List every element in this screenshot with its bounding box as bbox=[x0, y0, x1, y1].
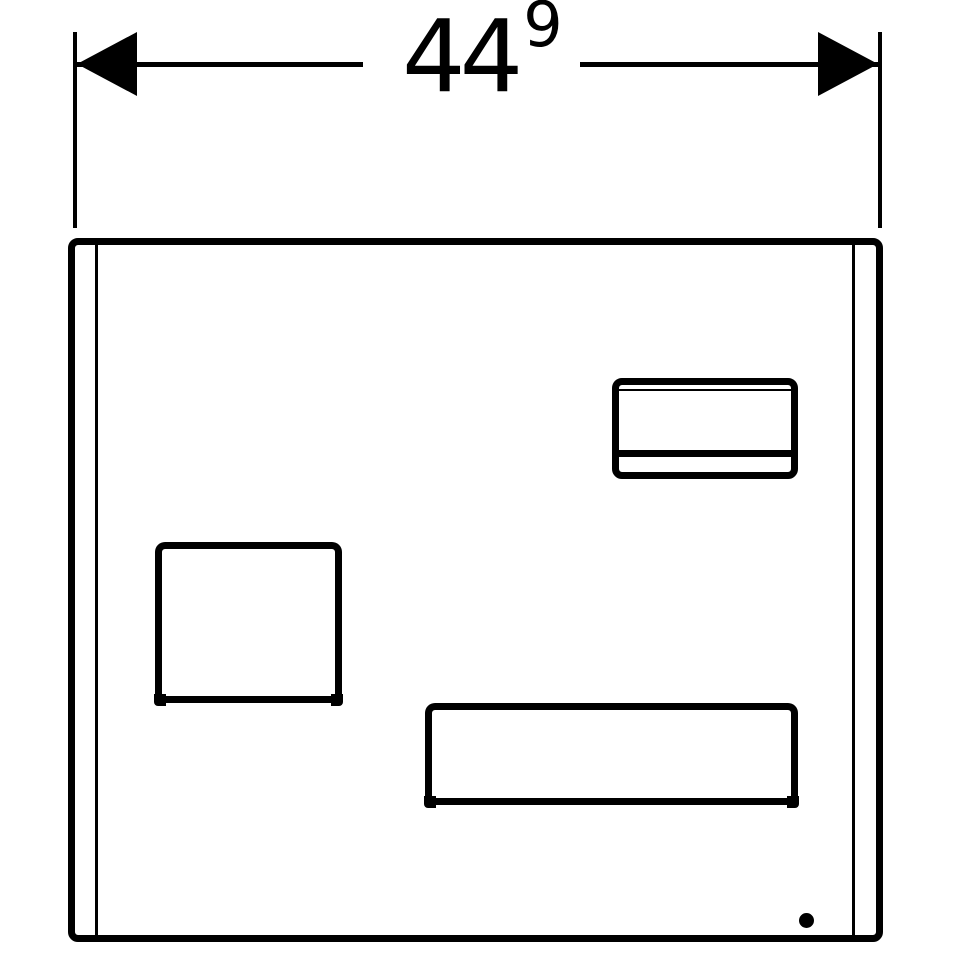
drawer-front-bottom bbox=[425, 703, 798, 805]
side-panel-line-right bbox=[852, 245, 855, 936]
drawer-left-corner-foot bbox=[424, 796, 436, 808]
fixing-point-dot bbox=[799, 913, 814, 928]
drawer-right-corner-foot bbox=[787, 796, 799, 808]
dimension-arrow-right-icon bbox=[818, 32, 878, 96]
extension-line-right bbox=[878, 32, 882, 228]
dimension-arrow-left-icon bbox=[77, 32, 137, 96]
dimension-superscript: 9 bbox=[523, 0, 562, 61]
door-front-left bbox=[155, 542, 342, 703]
door-right-corner-foot bbox=[331, 694, 343, 706]
drawer-top-edge-line bbox=[619, 389, 791, 391]
drawer-handle-band bbox=[619, 450, 791, 457]
dimension-label: 449 bbox=[402, 7, 563, 107]
dimension-value: 44 bbox=[402, 0, 517, 115]
drawer-front-top-right bbox=[612, 378, 798, 479]
side-panel-line-left bbox=[95, 245, 98, 936]
door-left-corner-foot bbox=[154, 694, 166, 706]
technical-drawing: 449 bbox=[0, 0, 953, 953]
